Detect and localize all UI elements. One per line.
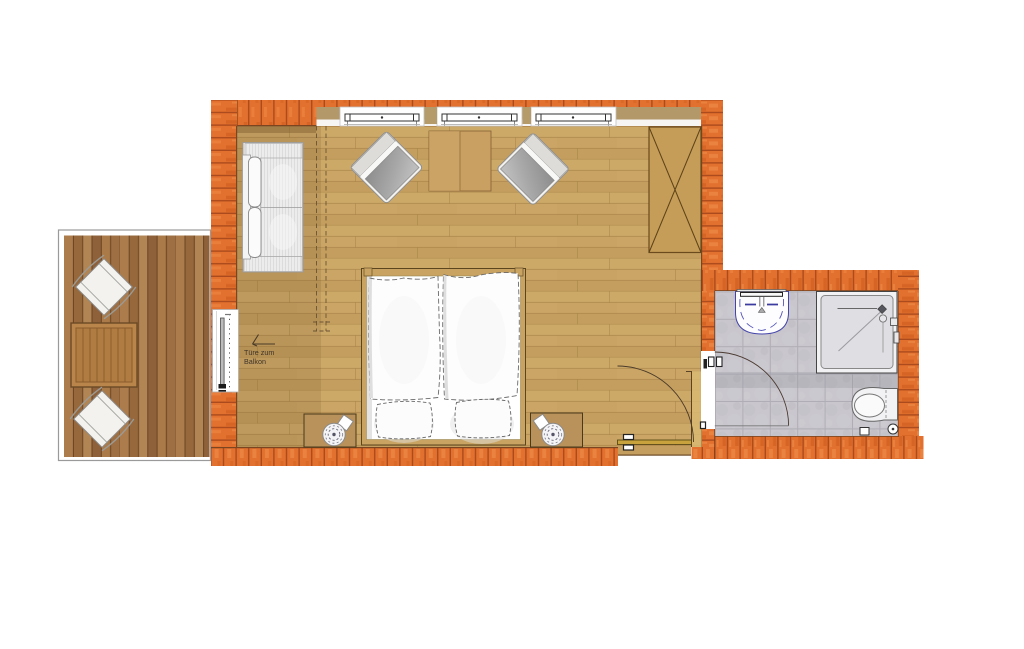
svg-text:Türe zum: Türe zum <box>244 348 274 357</box>
svg-text:Balkon: Balkon <box>244 357 266 366</box>
